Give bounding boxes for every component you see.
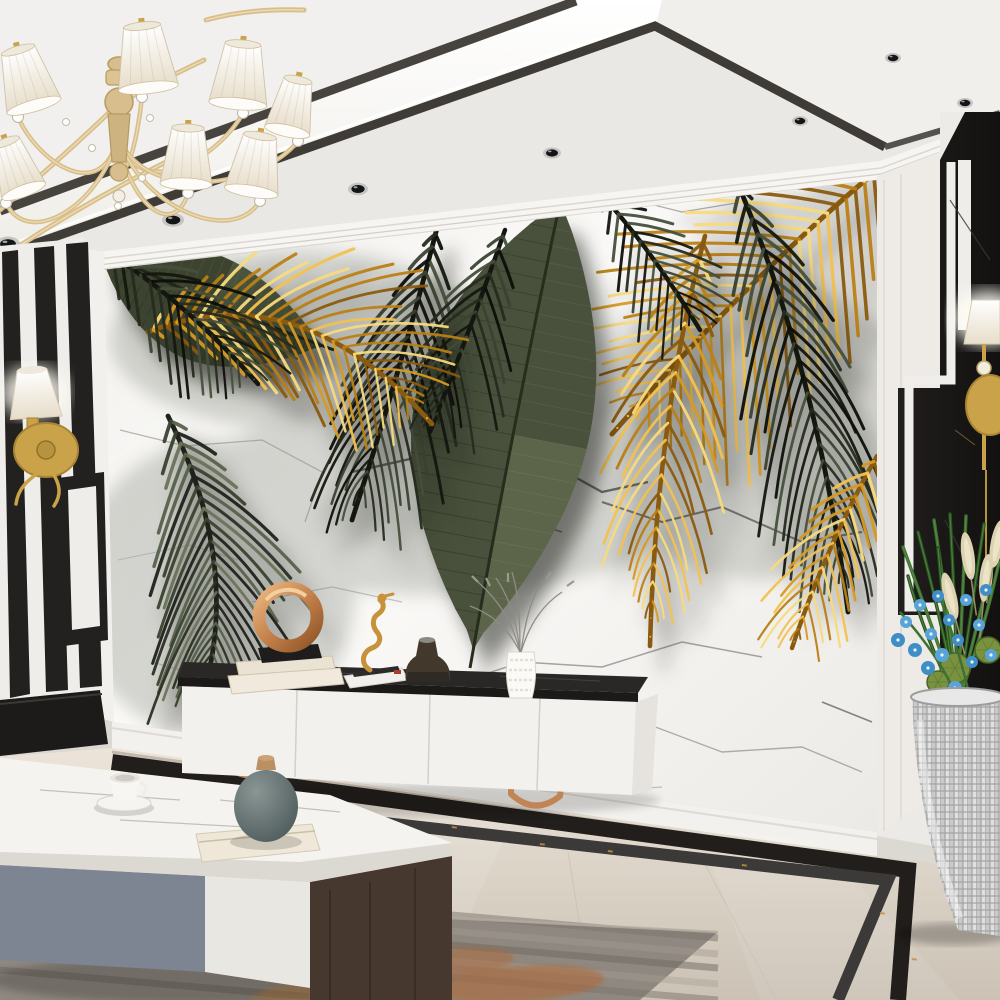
vase-cap-top [258, 755, 274, 761]
red-bookmark [394, 670, 401, 674]
ceiling-spotlight [543, 147, 561, 158]
teal-vase-body [234, 770, 298, 842]
sconce-crystal-ball [977, 361, 991, 375]
table-drawer-white [205, 876, 310, 988]
seahorse-snout [385, 594, 393, 596]
ceiling-spotlight [885, 53, 901, 63]
planter-rim [911, 688, 1000, 706]
ceiling-spotlight [957, 98, 973, 108]
scene-canvas [0, 0, 1000, 1000]
ceiling-spotlight [348, 183, 368, 195]
bronze-vase-base [406, 672, 450, 682]
left-wall-step-emblem-inner [68, 486, 100, 630]
bronze-vase-top [419, 637, 435, 643]
table-drawer-grey [0, 865, 205, 972]
living-room-photo [0, 0, 1000, 1000]
cup-inside [115, 775, 135, 781]
ceiling-spotlight [792, 116, 808, 126]
left-wall-black-baseboard [0, 690, 108, 756]
sconce-backplate-hub [37, 441, 55, 459]
